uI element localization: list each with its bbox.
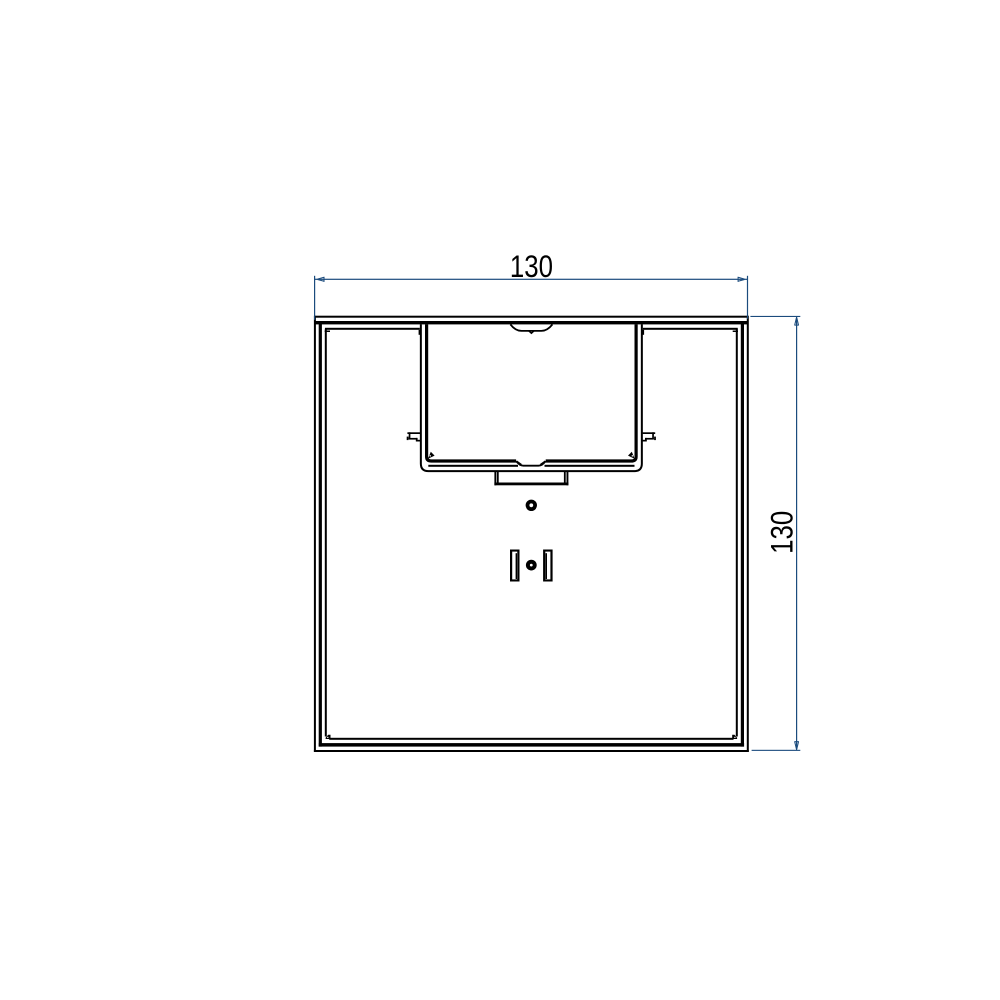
svg-text:130: 130	[510, 250, 553, 285]
svg-text:130: 130	[765, 511, 800, 554]
